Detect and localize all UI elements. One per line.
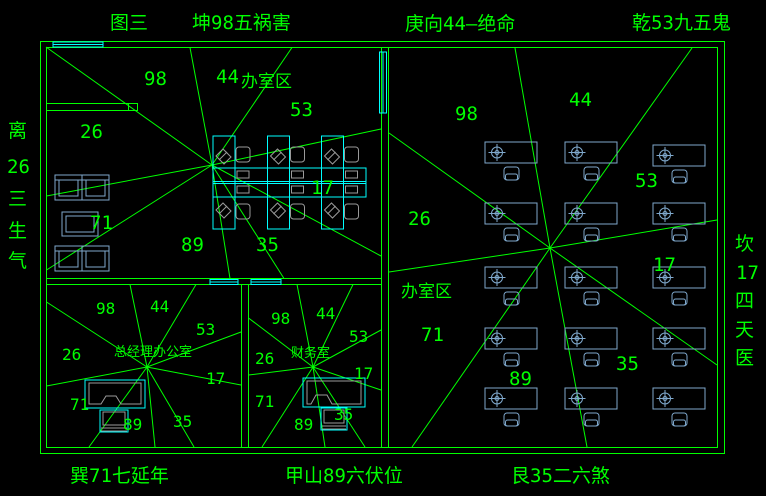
desk bbox=[565, 142, 617, 180]
star-gm-office bbox=[47, 285, 242, 448]
sector-number: 26 bbox=[255, 351, 274, 367]
sector-number: 98 bbox=[271, 311, 290, 327]
sector-number: 98 bbox=[144, 70, 167, 89]
desk bbox=[565, 203, 617, 241]
desk bbox=[653, 145, 705, 183]
sector-number: 26 bbox=[408, 210, 431, 229]
desk bbox=[565, 388, 617, 426]
sector-number: 71 bbox=[255, 394, 274, 410]
sector-number: 17 bbox=[354, 366, 373, 382]
direction-label-jiashan: 甲山89六伏位 bbox=[285, 467, 403, 486]
direction-label-li-char: 26 bbox=[7, 158, 30, 177]
desk bbox=[565, 267, 617, 305]
sector-number: 17 bbox=[311, 179, 334, 198]
desk bbox=[485, 142, 537, 180]
sector-number: 71 bbox=[421, 326, 444, 345]
desk bbox=[653, 203, 705, 241]
workstation-column bbox=[268, 136, 305, 229]
direction-label-li-char: 气 bbox=[8, 252, 27, 271]
direction-label-gen: 艮35二六煞 bbox=[511, 467, 610, 486]
direction-label-qian: 乾53九五鬼 bbox=[632, 14, 731, 33]
sector-number: 53 bbox=[349, 329, 368, 345]
desk bbox=[565, 328, 617, 366]
direction-label-kan-char: 医 bbox=[735, 349, 754, 368]
sector-number: 53 bbox=[196, 322, 215, 338]
sector-number: 44 bbox=[150, 299, 169, 315]
desk bbox=[653, 388, 705, 426]
direction-label-kan-char: 四 bbox=[735, 292, 754, 311]
direction-label-li-char: 离 bbox=[8, 122, 27, 141]
sector-number: 89 bbox=[181, 236, 204, 255]
sector-number: 89 bbox=[123, 417, 142, 433]
sector-number: 53 bbox=[635, 172, 658, 191]
direction-label-xun: 巽71七延年 bbox=[70, 467, 169, 486]
sector-number: 71 bbox=[70, 397, 89, 413]
direction-label-li-char: 三 bbox=[8, 190, 27, 209]
direction-label-kun: 坤98五祸害 bbox=[192, 14, 291, 33]
star-right bbox=[389, 48, 717, 447]
desk bbox=[653, 328, 705, 366]
desk bbox=[485, 203, 537, 241]
room-label-finance: 财务室 bbox=[291, 347, 330, 360]
direction-label-geng: 庚向44—绝命 bbox=[405, 15, 515, 34]
sector-number: 89 bbox=[509, 370, 532, 389]
room-area-label: 办室区 bbox=[241, 74, 292, 91]
sector-number: 17 bbox=[206, 371, 225, 387]
sector-number: 89 bbox=[294, 417, 313, 433]
figure-title: 图三 bbox=[110, 14, 148, 33]
sector-number: 17 bbox=[653, 256, 676, 275]
direction-label-li-char: 生 bbox=[8, 222, 27, 241]
desk bbox=[485, 328, 537, 366]
sector-number: 44 bbox=[216, 68, 239, 87]
room-label-gm: 总经理办公室 bbox=[114, 346, 192, 359]
sector-number: 26 bbox=[62, 347, 81, 363]
sofa bbox=[55, 175, 82, 200]
sofa bbox=[82, 175, 109, 200]
sector-number: 35 bbox=[173, 414, 192, 430]
sector-number: 44 bbox=[316, 306, 335, 322]
desk bbox=[485, 388, 537, 426]
sector-number: 53 bbox=[290, 101, 313, 120]
room-area-label: 办室区 bbox=[401, 284, 452, 301]
sofa bbox=[82, 246, 109, 271]
sector-number: 35 bbox=[616, 355, 639, 374]
direction-label-kan-char: 17 bbox=[736, 264, 759, 283]
workstation-cluster bbox=[213, 136, 366, 229]
sector-number: 44 bbox=[569, 91, 592, 110]
sector-number: 71 bbox=[90, 214, 113, 233]
sector-number: 35 bbox=[334, 407, 353, 423]
floor-plan-drawing bbox=[0, 0, 766, 496]
sector-number: 98 bbox=[96, 301, 115, 317]
desk bbox=[485, 267, 537, 305]
sector-number: 26 bbox=[80, 123, 103, 142]
sector-number: 98 bbox=[455, 105, 478, 124]
floor-plan-canvas: 图三 坤98五祸害 庚向44—绝命 乾53九五鬼 巽71七延年 甲山89六伏位 … bbox=[0, 0, 766, 496]
direction-label-kan-char: 坎 bbox=[735, 235, 754, 254]
direction-label-kan-char: 天 bbox=[735, 321, 754, 340]
sector-number: 35 bbox=[256, 236, 279, 255]
